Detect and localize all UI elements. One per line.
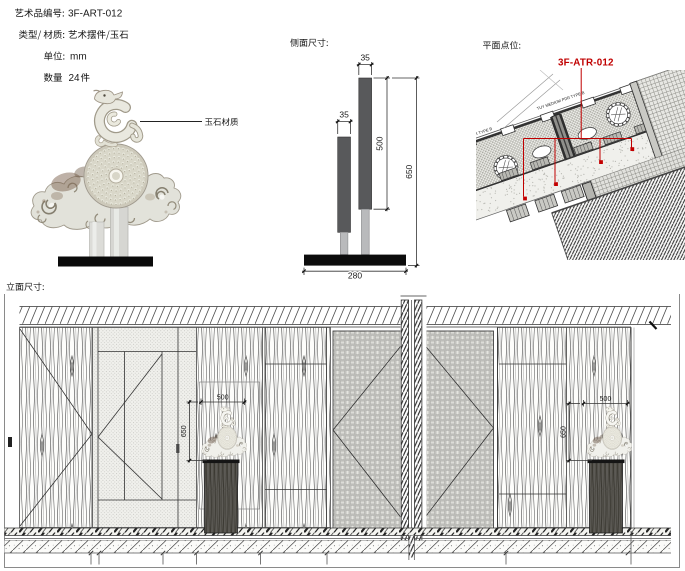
svg-text:500: 500 [217,395,229,402]
svg-text:280: 280 [348,271,362,281]
svg-text:650: 650 [181,425,188,437]
svg-text:3F-ATR-012: 3F-ATR-012 [558,58,614,69]
svg-text:mm: mm [70,52,87,63]
svg-text:500: 500 [375,136,385,150]
svg-text:650: 650 [404,164,414,178]
svg-text:24: 24 [69,73,81,84]
svg-text:35: 35 [360,53,370,63]
svg-text:500: 500 [600,396,612,403]
svg-text:3F-ART-012: 3F-ART-012 [68,9,123,20]
svg-text:35: 35 [339,110,349,120]
svg-text:650: 650 [561,426,568,438]
